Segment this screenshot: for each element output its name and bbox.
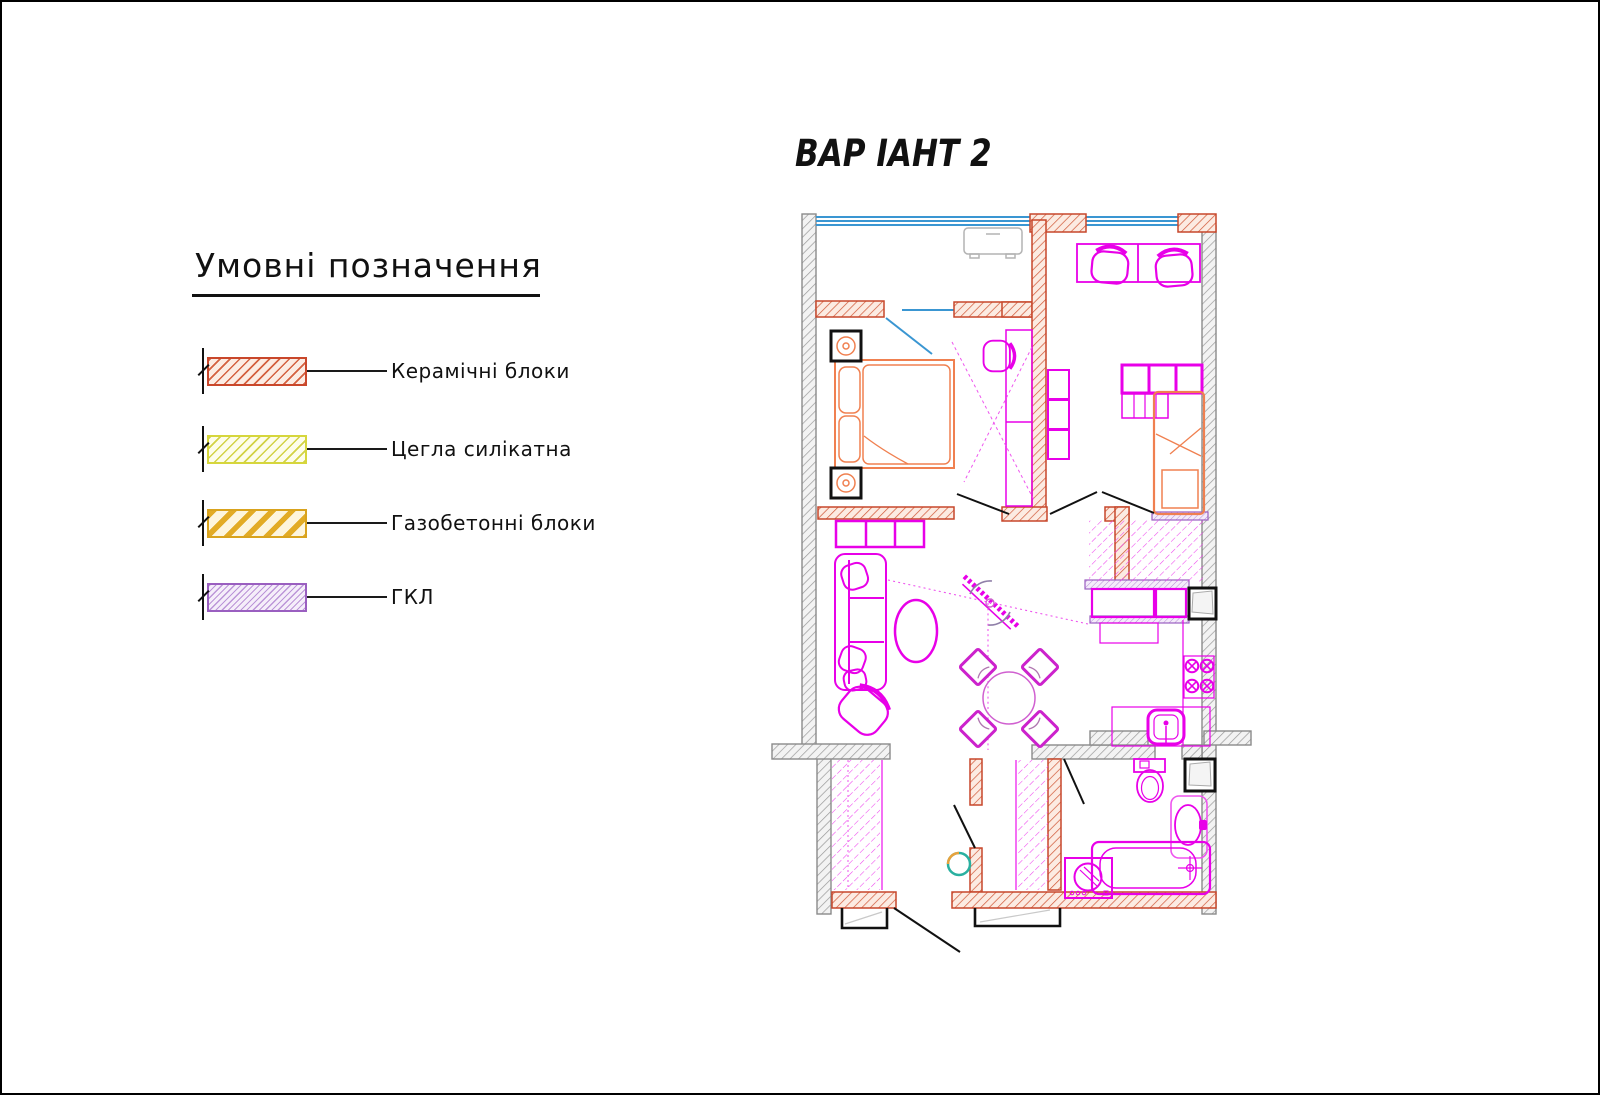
dimension-tick-icon bbox=[202, 348, 204, 394]
legend-item-aerated-blocks: Газобетонні блоки bbox=[202, 508, 596, 538]
window-glazing bbox=[816, 217, 1178, 354]
closets bbox=[832, 760, 1048, 890]
bedroom-furniture bbox=[831, 330, 1034, 506]
balcony-door-swing bbox=[886, 318, 932, 354]
dining-table bbox=[983, 672, 1035, 724]
drawing-sheet: ВАР ІАНТ 2 Умовні позначення Керамічні б… bbox=[0, 0, 1600, 1095]
office-furniture bbox=[1048, 244, 1204, 514]
legend-item-silicate-brick: Цегла силікатна bbox=[202, 434, 572, 464]
living-room-furniture bbox=[834, 521, 1088, 750]
coffee-table-oval bbox=[895, 600, 937, 662]
drawing-title: ВАР ІАНТ 2 bbox=[795, 132, 992, 175]
floor-plan bbox=[757, 197, 1262, 972]
kitchen-cabinets bbox=[1092, 589, 1186, 745]
kitchen-floor-hatch bbox=[1089, 520, 1203, 582]
double-bed bbox=[835, 360, 954, 468]
gkl-hatch-swatch bbox=[207, 583, 307, 612]
bathtub bbox=[1092, 842, 1210, 894]
legend-heading-underline bbox=[192, 294, 540, 297]
toilet bbox=[1134, 759, 1165, 802]
legend-label: Газобетонні блоки bbox=[391, 511, 596, 535]
dimension-tick-icon bbox=[202, 574, 204, 620]
leader-line bbox=[307, 522, 387, 524]
nightstand bbox=[831, 331, 861, 361]
silicate-hatch-swatch bbox=[207, 435, 307, 464]
water-heater bbox=[948, 853, 970, 875]
legend-label: Цегла силікатна bbox=[391, 437, 572, 461]
office-shelves bbox=[1048, 370, 1069, 459]
bedroom-chair bbox=[984, 341, 1015, 372]
dimension-tick-icon bbox=[202, 500, 204, 546]
kitchen bbox=[1089, 520, 1216, 746]
tv-unit bbox=[960, 576, 1019, 632]
single-bed bbox=[1154, 392, 1204, 514]
nightstand bbox=[831, 468, 861, 498]
legend-item-ceramic-blocks: Керамічні блоки bbox=[202, 356, 570, 386]
legend-label: Керамічні блоки bbox=[391, 359, 570, 383]
dimension-tick-icon bbox=[202, 426, 204, 472]
leader-line bbox=[307, 448, 387, 450]
shelf-row bbox=[836, 521, 924, 547]
bathroom-cabinet bbox=[1185, 759, 1215, 791]
sofa bbox=[835, 554, 886, 692]
aerated-hatch-swatch bbox=[207, 509, 307, 538]
leader-line bbox=[307, 596, 387, 598]
ac-unit bbox=[964, 228, 1022, 258]
armchair bbox=[834, 678, 896, 740]
wardrobe-door-swing-lines bbox=[952, 342, 1034, 500]
office-chair bbox=[1091, 245, 1130, 284]
ceramic-hatch-swatch bbox=[207, 357, 307, 386]
legend-heading: Умовні позначення bbox=[195, 246, 542, 285]
dining-set bbox=[960, 649, 1059, 748]
kitchen-corner-unit bbox=[1189, 588, 1216, 619]
legend-label: ГКЛ bbox=[391, 585, 434, 609]
bathroom bbox=[948, 759, 1215, 898]
leader-line bbox=[307, 370, 387, 372]
legend-item-gkl: ГКЛ bbox=[202, 582, 434, 612]
